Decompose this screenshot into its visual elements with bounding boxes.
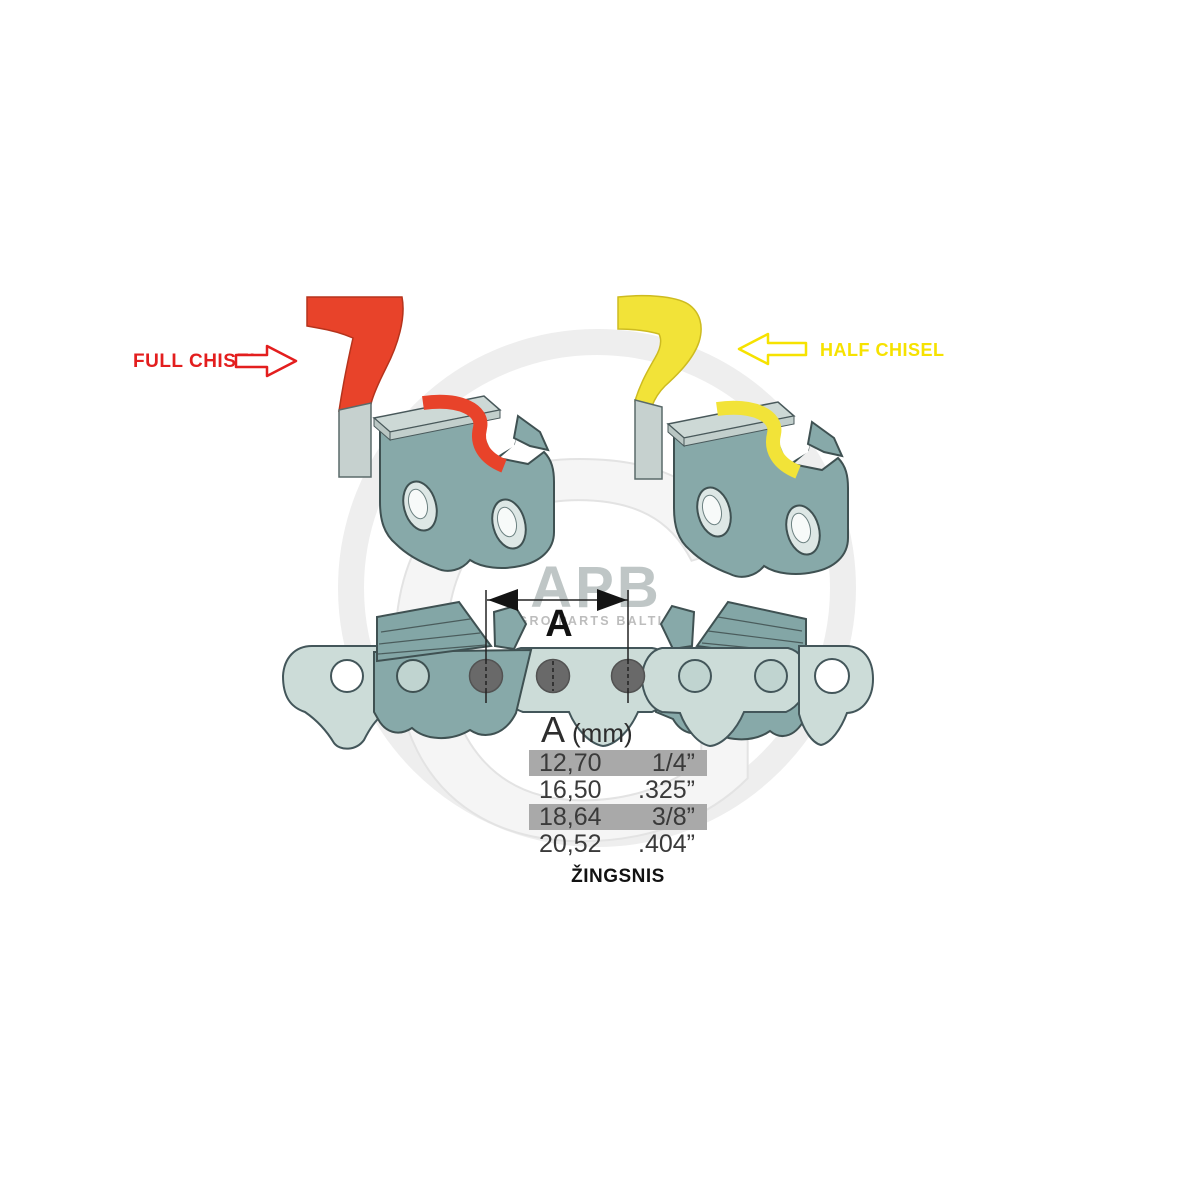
pitch-mm: 16,50: [539, 776, 602, 805]
pitch-inch: 3/8”: [652, 803, 695, 832]
pitch-inch: 1/4”: [652, 749, 695, 778]
half-chisel-label: HALF CHISEL: [820, 340, 945, 360]
pitch-table-header-unit: (mm): [572, 718, 633, 749]
pitch-caption: ŽINGSNIS: [529, 866, 707, 888]
pitch-inch: .325”: [638, 776, 695, 805]
chain-hole: [679, 660, 711, 692]
pitch-table-header-symbol: A: [541, 710, 565, 750]
chain-left-cutter-body: [374, 650, 531, 738]
diagram-canvas: G APB AGRO PARTS BALTIJA FULL CHISEL HAL…: [0, 0, 1188, 1188]
table-row: 20,52 .404”: [529, 831, 707, 857]
table-row: 16,50 .325”: [529, 777, 707, 803]
half-chisel-link: [668, 402, 848, 577]
watermark-subtitle: AGRO PARTS BALTIJA: [506, 614, 683, 628]
dimension-label: A: [545, 603, 572, 645]
pitch-mm: 20,52: [539, 830, 602, 859]
full-chisel-link: [374, 396, 554, 571]
chain-hole: [755, 660, 787, 692]
pitch-inch: .404”: [638, 830, 695, 859]
chain-hole: [397, 660, 429, 692]
pitch-mm: 12,70: [539, 749, 602, 778]
chain-hole: [331, 660, 363, 692]
diagram-svg: G APB AGRO PARTS BALTIJA FULL CHISEL HAL…: [0, 0, 1188, 1188]
pitch-mm: 18,64: [539, 803, 602, 832]
pitch-table: A (mm) 12,70 1/4” 16,50 .325” 18,64 3/8”…: [529, 710, 707, 858]
table-row: 18,64 3/8”: [529, 804, 707, 830]
half-chisel-profile-stem: [635, 400, 662, 479]
pitch-table-header: A (mm): [529, 710, 707, 750]
chain-hole: [815, 659, 849, 693]
table-row: 12,70 1/4”: [529, 750, 707, 776]
full-chisel-profile-stem: [339, 403, 371, 477]
